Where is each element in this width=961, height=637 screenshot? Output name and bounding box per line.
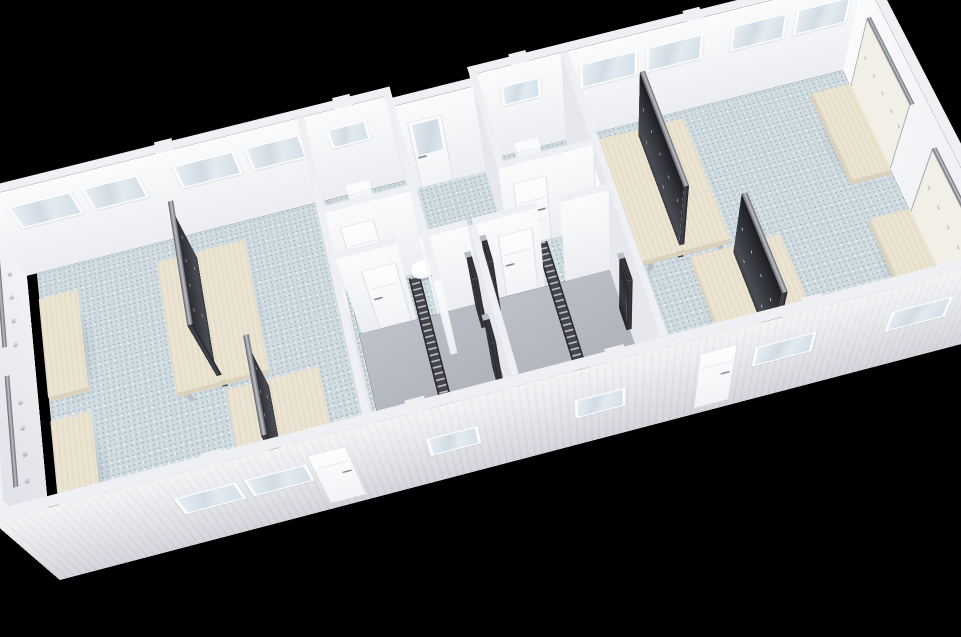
strip-window-exterior [884, 296, 953, 332]
door-groove [370, 283, 397, 291]
coat-hook [181, 235, 182, 240]
coat-hook [864, 55, 866, 60]
shower-window-exterior [425, 426, 480, 456]
strip-window [792, 0, 851, 36]
render-canvas [0, 0, 961, 637]
coat-hook [651, 130, 652, 135]
coat-hook [193, 266, 194, 271]
coat-hook [769, 298, 771, 303]
coat-hook [750, 250, 752, 255]
strip-window [243, 135, 307, 172]
entrance-door-south-left [306, 447, 366, 504]
coat-hook [642, 108, 643, 113]
coat-hook [266, 395, 267, 400]
coat-hook [662, 185, 663, 190]
coat-hook [201, 314, 202, 319]
strip-window [7, 192, 84, 229]
shower-wall-face [559, 190, 609, 281]
door-handle [373, 297, 382, 301]
door-handle [418, 155, 427, 159]
coat-hook [659, 152, 660, 157]
coat-hook [741, 227, 743, 232]
coat-hook [872, 73, 874, 78]
coat-hook [668, 175, 669, 180]
door-groove [316, 461, 347, 470]
shower-window-exterior [574, 388, 625, 419]
wc-strip-window [500, 77, 541, 107]
coat-hook [676, 198, 677, 203]
coat-hook [889, 108, 891, 113]
coat-hook [189, 283, 190, 288]
door-groove [701, 361, 731, 370]
strip-window [81, 175, 149, 211]
coat-hook [646, 141, 647, 146]
wc-strip-window [326, 120, 371, 149]
door-handle [505, 263, 514, 267]
coat-hook [936, 204, 938, 209]
entrance-door-south-right [693, 345, 738, 409]
shower-door-right [497, 228, 538, 297]
coat-hook [881, 90, 883, 95]
coat-hook [927, 185, 929, 190]
strip-window [646, 34, 703, 73]
door-glass-panel [411, 119, 443, 156]
strip-window [729, 13, 787, 52]
coat-hook [760, 304, 762, 309]
coat-hook [897, 124, 899, 129]
coat-hook [946, 224, 948, 229]
strip-window [171, 151, 243, 189]
coat-hook [193, 308, 194, 313]
coat-hook [956, 244, 958, 249]
coat-hook [760, 274, 762, 279]
coat-hook [743, 260, 744, 265]
door-handle [342, 470, 352, 474]
door-groove [504, 249, 531, 257]
coat-hook [185, 259, 186, 264]
strip-window [579, 50, 637, 89]
strip-window-exterior [243, 465, 314, 497]
camera [0, 0, 961, 637]
door-handle [720, 371, 729, 375]
strip-window-exterior [173, 483, 246, 515]
shower-door-left [360, 263, 411, 329]
strip-window-exterior [751, 332, 816, 367]
